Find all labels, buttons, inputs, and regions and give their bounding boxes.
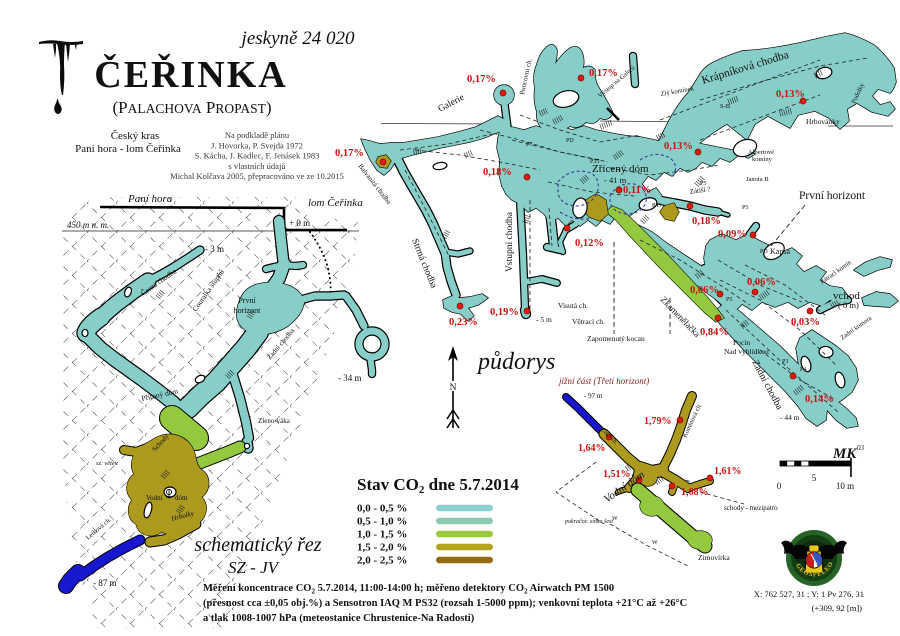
svg-text:S-B: S-B — [720, 103, 731, 110]
svg-text:W: W — [612, 516, 618, 522]
svg-text:- 5 m: - 5 m — [536, 315, 552, 324]
svg-text:Zřícený dóm: Zřícený dóm — [592, 163, 649, 175]
svg-text:PD: PD — [760, 249, 768, 255]
svg-text:0,5 - 1,0 %: 0,5 - 1,0 % — [357, 516, 407, 528]
svg-text:Visutá ch.: Visutá ch. — [558, 301, 588, 310]
svg-text:První: První — [238, 296, 256, 305]
svg-text:0,06%: 0,06% — [690, 285, 719, 296]
svg-text:0,17%: 0,17% — [467, 74, 496, 85]
svg-text:J. Hovorka, P. Svejda 1972: J. Hovorka, P. Svejda 1972 — [211, 140, 303, 150]
svg-text:Zadní komora: Zadní komora — [839, 315, 873, 342]
svg-text:pokračov. síňka šest: pokračov. síňka šest — [564, 519, 613, 525]
svg-text:X: 762 527, 31 ; Y: 1 Pv 276,: X: 762 527, 31 ; Y: 1 Pv 276, 31 — [754, 589, 864, 599]
svg-text:2,0 - 2,5 %: 2,0 - 2,5 % — [357, 555, 407, 567]
svg-text:0,23%: 0,23% — [449, 317, 478, 328]
svg-text:0: 0 — [777, 481, 782, 491]
svg-text:půdorys: půdorys — [476, 349, 555, 375]
svg-text:03: 03 — [857, 444, 865, 452]
svg-text:0,18%: 0,18% — [692, 216, 721, 227]
svg-text:1,5 - 2,0 %: 1,5 - 2,0 % — [357, 542, 407, 554]
svg-text:P5: P5 — [742, 205, 748, 211]
svg-text:(PALACHOVA PROPAST): (PALACHOVA PROPAST) — [112, 98, 271, 117]
svg-text:SZ - JV: SZ - JV — [228, 558, 281, 577]
svg-text:1,64%: 1,64% — [578, 443, 606, 454]
svg-text:Albertové: Albertové — [748, 149, 774, 156]
svg-text:Strmá chodba: Strmá chodba — [409, 237, 438, 290]
svg-text:Měření koncentrace CO2 5.7.201: Měření koncentrace CO2 5.7.2014, 11:00-1… — [203, 583, 614, 596]
svg-text:dóm: dóm — [175, 494, 188, 502]
svg-text:0,11%: 0,11% — [623, 185, 651, 196]
svg-text:1,68%: 1,68% — [681, 487, 709, 498]
svg-text:S. Kácha, J. Kadlec, F. Jenáse: S. Kácha, J. Kadlec, F. Jenásek 1983 — [195, 151, 320, 161]
svg-text:5: 5 — [812, 473, 817, 483]
svg-text:- 97 m: - 97 m — [584, 392, 603, 400]
svg-text:Pocín: Pocín — [733, 338, 750, 347]
svg-text:- 3 m: - 3 m — [205, 244, 224, 254]
svg-text:0,03%: 0,03% — [791, 317, 820, 328]
svg-text:Zapomenutý kocan: Zapomenutý kocan — [587, 334, 645, 343]
svg-text:Český kras: Český kras — [111, 130, 160, 142]
svg-text:jeskyně 24 020: jeskyně 24 020 — [239, 28, 355, 49]
svg-text:P45: P45 — [652, 203, 661, 209]
svg-text:P5: P5 — [700, 181, 706, 187]
svg-text:- 87 m: - 87 m — [93, 578, 117, 588]
svg-text:komíny: komíny — [752, 156, 773, 163]
svg-text:Vodní: Vodní — [146, 494, 163, 502]
svg-text:Michal Kolčava 2005, přepracov: Michal Kolčava 2005, přepracováno ve ze … — [170, 171, 344, 181]
svg-text:- 44 m: - 44 m — [780, 413, 800, 422]
svg-text:W: W — [652, 540, 658, 546]
svg-text:P4: P4 — [800, 367, 806, 373]
svg-text:Zimovírka: Zimovírka — [698, 553, 730, 562]
svg-text:0,19%: 0,19% — [490, 307, 519, 318]
svg-text:0,17%: 0,17% — [335, 148, 364, 159]
svg-text:Janota B: Janota B — [746, 176, 769, 183]
svg-text:schematický řez: schematický řez — [194, 534, 321, 556]
svg-text:První horizont: První horizont — [799, 190, 866, 202]
svg-text:Na podkladě plánu: Na podkladě plánu — [225, 130, 290, 140]
svg-text:Paní hora: Paní hora — [127, 193, 173, 205]
svg-text:Zleno-váka: Zleno-váka — [258, 417, 291, 425]
svg-text:MK: MK — [832, 446, 857, 462]
svg-text:P3: P3 — [782, 359, 788, 365]
svg-text:1,79%: 1,79% — [644, 416, 672, 427]
svg-text:Hrbovánky: Hrbovánky — [806, 117, 840, 126]
svg-text:Nad vyhlídkou: Nad vyhlídkou — [724, 347, 769, 356]
svg-text:Paní hora - lom Čeřinka: Paní hora - lom Čeřinka — [75, 143, 181, 155]
svg-text:0,12%: 0,12% — [575, 238, 604, 249]
svg-text:P7: P7 — [526, 142, 532, 148]
svg-text:Galerie: Galerie — [437, 93, 466, 115]
svg-text:ČEŘINKA: ČEŘINKA — [94, 53, 287, 96]
svg-text:+ 0 m: + 0 m — [289, 218, 310, 228]
svg-text:0,84%: 0,84% — [700, 327, 729, 338]
svg-text:schody - mezipatro: schody - mezipatro — [724, 504, 778, 512]
svg-text:Větrací ch.: Větrací ch. — [572, 317, 605, 326]
svg-text:s vlastních údajů: s vlastních údajů — [228, 161, 286, 171]
svg-text:horizont: horizont — [234, 306, 261, 315]
svg-text:Vstupní chodba: Vstupní chodba — [505, 211, 515, 272]
svg-text:PD: PD — [566, 138, 574, 144]
svg-text:0,0 - 0,5 %: 0,0 - 0,5 % — [357, 503, 407, 515]
svg-text:- 41 m: - 41 m — [604, 175, 627, 185]
svg-text:Stav CO2 dne 5.7.2014: Stav CO2 dne 5.7.2014 — [357, 475, 519, 496]
svg-text:(+309, 92 [m]): (+309, 92 [m]) — [812, 603, 863, 613]
svg-text:(přesnost cca ±0,05 obj.%) a S: (přesnost cca ±0,05 obj.%) a Sensotron I… — [203, 598, 687, 609]
svg-text:N: N — [450, 383, 457, 393]
svg-text:0,14%: 0,14% — [805, 394, 834, 405]
svg-text:1,61%: 1,61% — [714, 466, 742, 477]
svg-text:- 34 m: - 34 m — [338, 373, 362, 383]
svg-text:450 m n. m.: 450 m n. m. — [67, 220, 109, 230]
svg-text:lom Čeřinka: lom Čeřinka — [308, 197, 363, 209]
svg-text:Puncovní ch.: Puncovní ch. — [518, 58, 533, 96]
svg-text:1,0 - 1,5 %: 1,0 - 1,5 % — [357, 529, 407, 541]
svg-text:sz. větev: sz. větev — [96, 460, 118, 467]
svg-text:P5: P5 — [726, 297, 732, 303]
svg-text:10 m: 10 m — [836, 481, 854, 491]
svg-text:( 0 m): ( 0 m) — [838, 300, 859, 310]
svg-text:0,18%: 0,18% — [483, 167, 512, 178]
svg-text:P35: P35 — [590, 159, 599, 165]
svg-text:0,09%: 0,09% — [718, 229, 747, 240]
svg-text:jižní část (Třetí horizont): jižní část (Třetí horizont) — [558, 376, 649, 386]
svg-text:0,17%: 0,17% — [589, 68, 618, 79]
svg-text:0,13%: 0,13% — [664, 141, 693, 152]
svg-text:0,06%: 0,06% — [747, 277, 776, 288]
svg-text:a tlak 1008-1007 hPa (meteosta: a tlak 1008-1007 hPa (meteostanice Chrus… — [203, 613, 475, 624]
svg-text:0,13%: 0,13% — [776, 89, 805, 100]
svg-text:Kapsa: Kapsa — [770, 247, 790, 256]
